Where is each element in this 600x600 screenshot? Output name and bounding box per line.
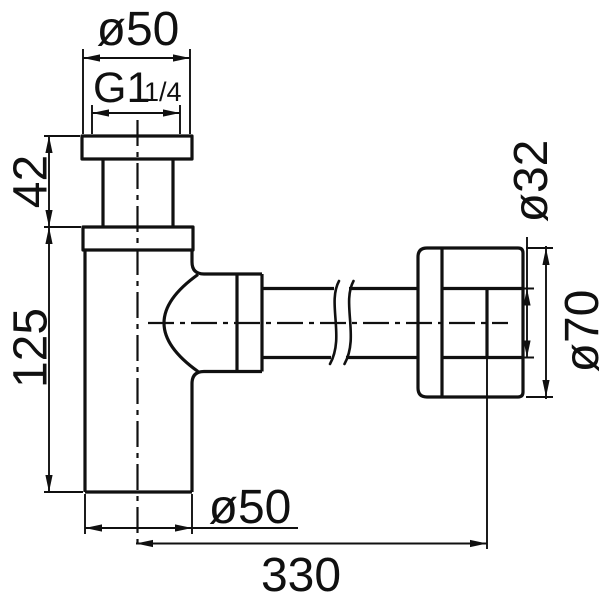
arrow (45, 136, 52, 153)
arrow (470, 540, 487, 547)
label-flange-diameter: ø70 (556, 290, 600, 373)
arrow (542, 248, 549, 265)
arrow (542, 380, 549, 397)
dimension-lines (44, 49, 553, 549)
arrow (45, 475, 52, 492)
bottle-trap-technical-drawing: ø50 G1 1/4 42 125 ø50 330 ø32 ø70 (0, 0, 600, 600)
label-pipe-diameter: ø32 (505, 140, 558, 223)
trap-outline (82, 136, 523, 492)
label-body-height: 125 (5, 308, 58, 388)
dimension-arrows (45, 54, 549, 547)
label-total-length: 330 (261, 549, 341, 600)
arrow (45, 210, 52, 227)
label-top-diameter: ø50 (97, 3, 180, 56)
label-inlet-height: 42 (5, 155, 58, 208)
arrow (163, 109, 180, 116)
label-bottom-diameter: ø50 (209, 481, 292, 534)
extension-lines (44, 49, 553, 549)
arrow (175, 524, 192, 531)
arrow (85, 524, 102, 531)
dimension-labels: ø50 G1 1/4 42 125 ø50 330 ø32 ø70 (5, 3, 600, 600)
label-thread-fraction: 1/4 (144, 77, 182, 107)
label-thread-size: G1 (93, 64, 150, 112)
arrow (45, 227, 52, 244)
